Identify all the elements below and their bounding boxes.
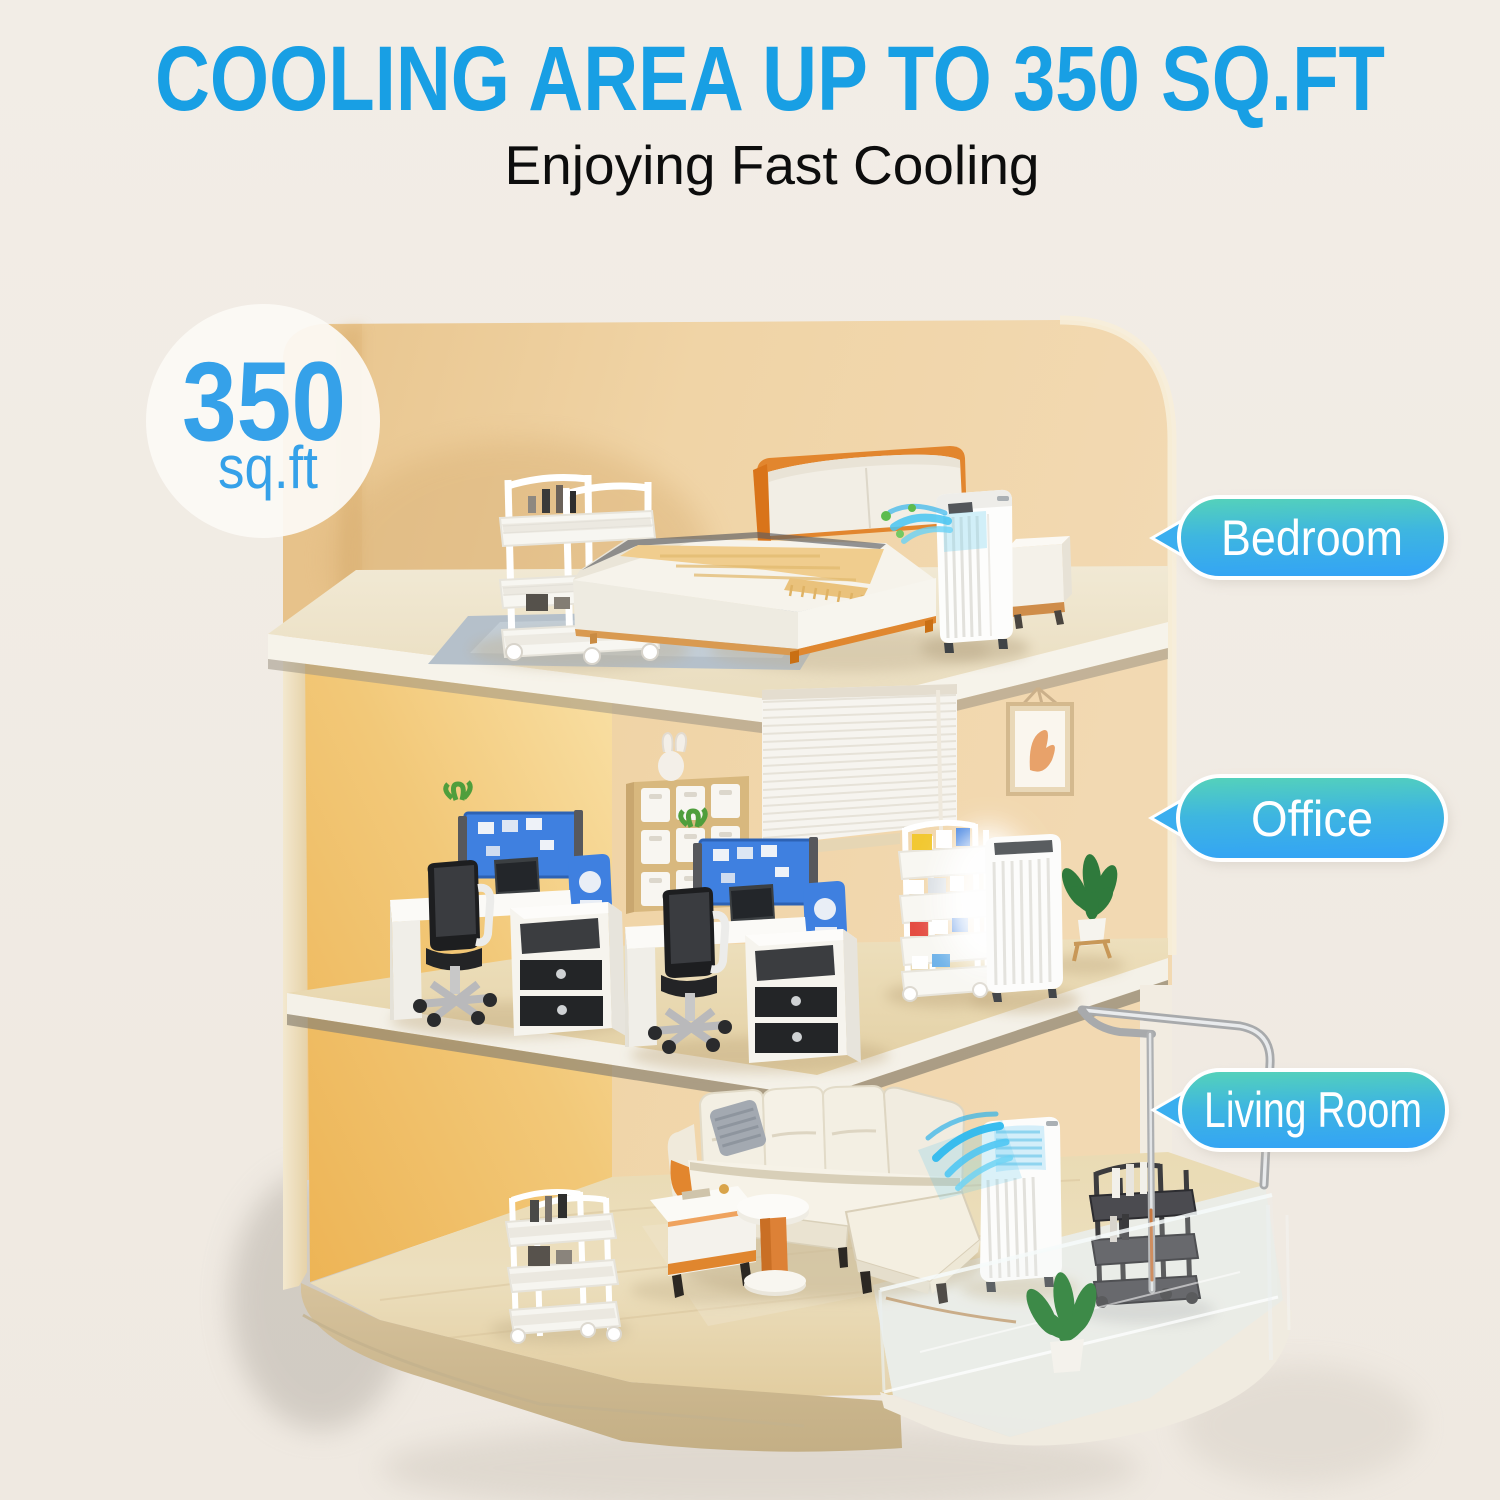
- svg-text:Living Room: Living Room: [1204, 1082, 1422, 1138]
- svg-text:Bedroom: Bedroom: [1221, 510, 1403, 566]
- svg-text:COOLING AREA UP TO 350 SQ.FT: COOLING AREA UP TO 350 SQ.FT: [155, 28, 1385, 130]
- svg-text:Enjoying Fast Cooling: Enjoying Fast Cooling: [505, 134, 1040, 196]
- svg-text:Office: Office: [1251, 791, 1373, 847]
- svg-text:sq.ft: sq.ft: [218, 434, 318, 501]
